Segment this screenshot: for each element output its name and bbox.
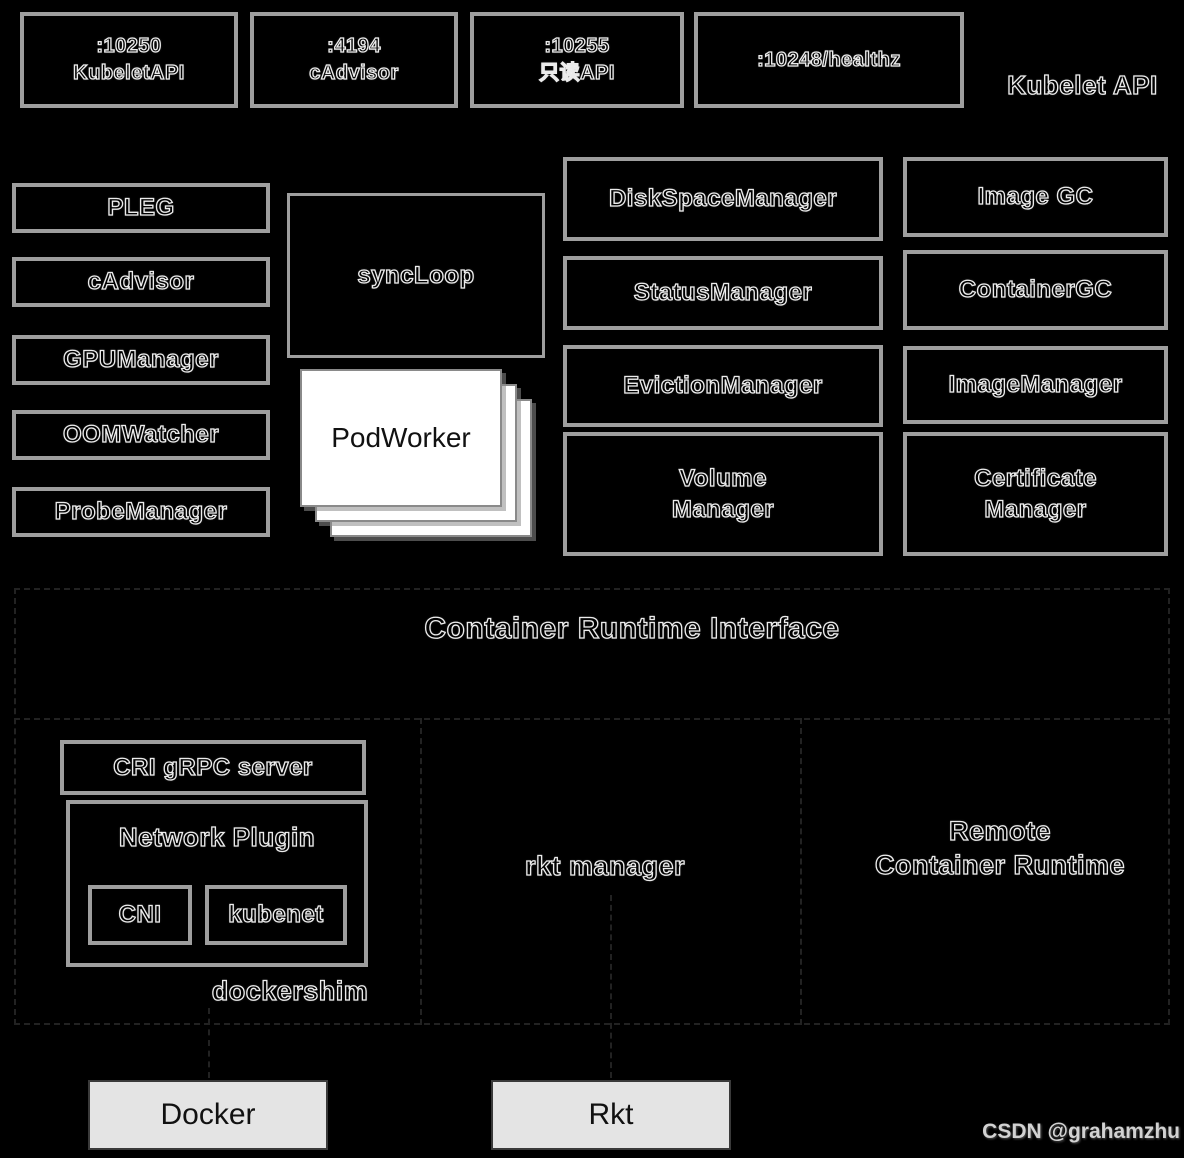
component-imagegc: Image GC <box>903 157 1168 237</box>
cri-grpc-server-label: CRI gRPC server <box>113 752 313 783</box>
component-label: ProbeManager <box>55 496 228 527</box>
cri-dashed-divider <box>14 718 1170 720</box>
component-imagemanager: ImageManager <box>903 346 1168 424</box>
port-service: cAdvisor <box>309 60 399 87</box>
component-oomwatcher: OOMWatcher <box>12 410 270 460</box>
port-box-10255: :10255 只读API <box>470 12 684 108</box>
dockershim-docker-connector <box>208 1008 210 1078</box>
component-label: Certificate Manager <box>974 463 1097 525</box>
component-diskspacemanager: DiskSpaceManager <box>563 157 883 241</box>
kubenet-label: kubenet <box>228 899 324 930</box>
component-label: Image GC <box>977 181 1093 212</box>
component-certificatemanager: Certificate Manager <box>903 432 1168 556</box>
docker-label: Docker <box>160 1098 255 1132</box>
rktmanager-rkt-connector <box>610 895 612 1078</box>
component-probemanager: ProbeManager <box>12 487 270 537</box>
component-label: EvictionManager <box>623 370 823 401</box>
network-plugin-label: Network Plugin <box>119 822 315 853</box>
port-number: :4194 <box>327 33 381 60</box>
podworker-label: PodWorker <box>331 422 471 454</box>
component-label: ContainerGC <box>959 274 1113 305</box>
port-box-10248-healthz: :10248/healthz <box>694 12 964 108</box>
port-number: :10255 <box>544 33 609 60</box>
cri-title: Container Runtime Interface <box>412 612 852 646</box>
rkt-manager-label: rkt manager <box>480 850 730 884</box>
port-service: 只读API <box>539 60 615 87</box>
csdn-watermark: CSDN @grahamzhu <box>970 1120 1180 1144</box>
component-cadvisor: cAdvisor <box>12 257 270 307</box>
port-box-4194: :4194 cAdvisor <box>250 12 458 108</box>
component-label: OOMWatcher <box>63 419 219 450</box>
cri-grpc-server-box: CRI gRPC server <box>60 740 366 795</box>
kubelet-api-label: Kubelet API <box>985 70 1180 101</box>
component-containergc: ContainerGC <box>903 250 1168 330</box>
component-gpumanager: GPUManager <box>12 335 270 385</box>
kubenet-box: kubenet <box>205 885 347 945</box>
component-volumemanager: Volume Manager <box>563 432 883 556</box>
runtime-section-divider-right <box>800 718 802 1025</box>
port-box-10250: :10250 KubeletAPI <box>20 12 238 108</box>
rkt-box: Rkt <box>491 1080 731 1150</box>
component-label: GPUManager <box>63 344 219 375</box>
port-service: KubeletAPI <box>73 60 185 87</box>
component-evictionmanager: EvictionManager <box>563 345 883 427</box>
component-label: ImageManager <box>948 369 1122 400</box>
component-label: StatusManager <box>634 277 813 308</box>
port-number: :10248/healthz <box>757 47 901 74</box>
port-number: :10250 <box>96 33 161 60</box>
component-pleg: PLEG <box>12 183 270 233</box>
cni-box: CNI <box>88 885 192 945</box>
cni-label: CNI <box>119 899 162 930</box>
component-label: DiskSpaceManager <box>609 183 837 214</box>
component-label: Volume Manager <box>672 463 774 525</box>
podworker-card-front: PodWorker <box>300 369 502 507</box>
component-label: PLEG <box>107 192 174 223</box>
kubelet-architecture-diagram: :10250 KubeletAPI :4194 cAdvisor :10255 … <box>0 0 1184 1158</box>
runtime-section-divider-left <box>420 718 422 1025</box>
component-label: cAdvisor <box>88 266 195 297</box>
remote-container-runtime-label: Remote Container Runtime <box>850 815 1150 883</box>
dockershim-label: dockershim <box>180 975 400 1009</box>
rkt-label: Rkt <box>589 1098 634 1132</box>
component-label: syncLoop <box>357 260 474 291</box>
component-statusmanager: StatusManager <box>563 256 883 330</box>
component-syncloop: syncLoop <box>287 193 545 358</box>
docker-box: Docker <box>88 1080 328 1150</box>
